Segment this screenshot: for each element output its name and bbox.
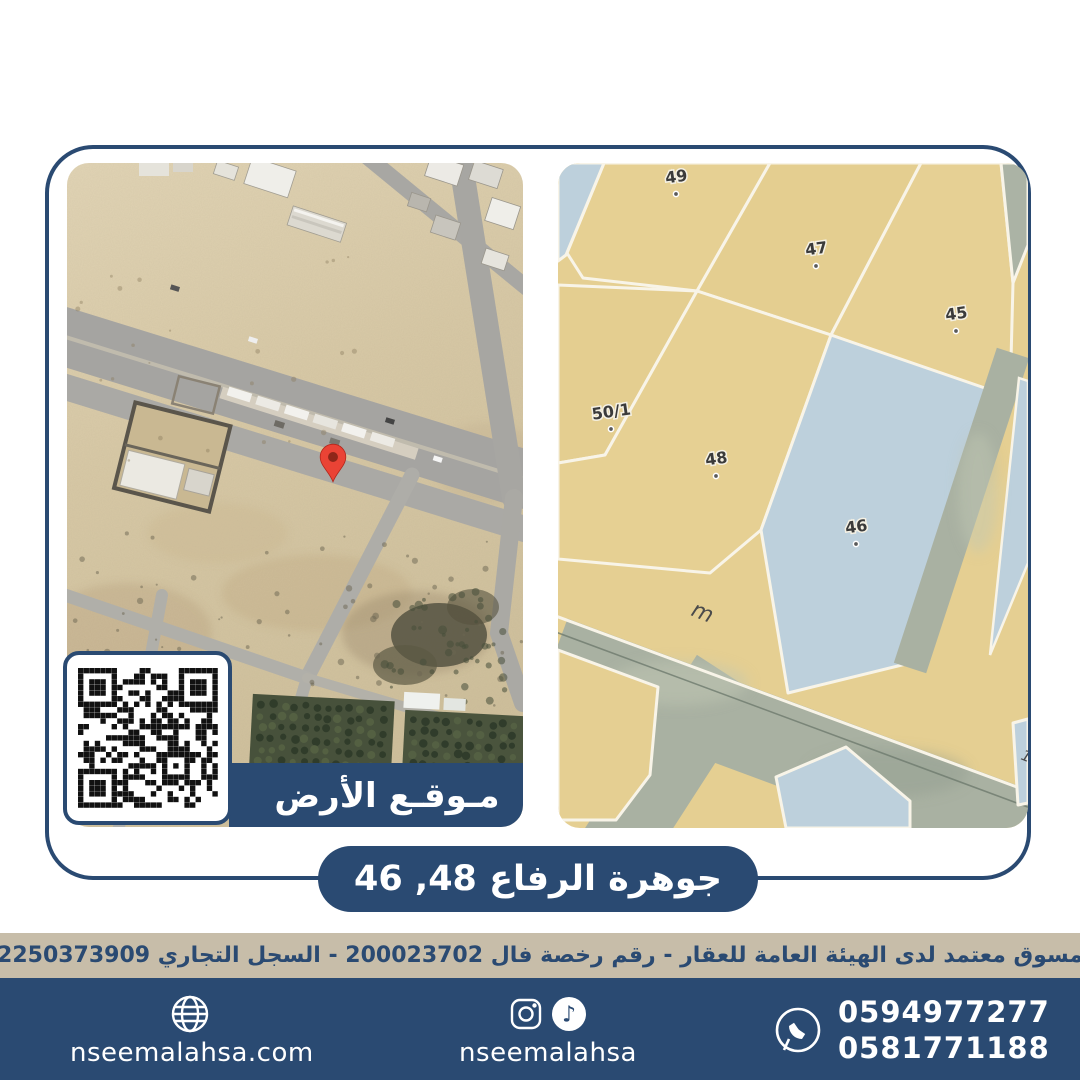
social-handle-text[interactable]: nseemalahsa [428,1038,668,1068]
svg-text:♪: ♪ [562,1003,576,1028]
tiktok-icon[interactable]: ♪ [551,996,587,1032]
globe-icon [170,994,210,1034]
phone-group[interactable]: 0594977277 0581771188 [772,994,1050,1066]
instagram-icon[interactable] [509,997,543,1031]
parcel-label-45: 45 [944,303,969,325]
whatsapp-icon[interactable] [772,1004,824,1056]
parcel-label-46: 46 [844,516,869,538]
social-group[interactable]: ♪ nseemalahsa [428,992,668,1068]
license-bar: مسوق معتمد لدى الهيئة العامة للعقار - رق… [0,933,1080,978]
parcel-label-48: 48 [704,448,729,470]
website-text[interactable]: nseemalahsa.com [70,1038,310,1068]
location-label: مـوقـع الأرض [274,774,499,816]
qr-modules [78,668,218,808]
parcel-label-49: 49 [664,166,689,188]
phone-handset-glyph [789,1023,805,1039]
footer-bar: nseemalahsa.com ♪ nseemalahsa 0594977277… [0,978,1080,1080]
title-banner: جوهرة الرفاع 48, 46 [318,846,758,912]
phone-number-2[interactable]: 0581771188 [838,1030,1050,1066]
phone-number-1[interactable]: 0594977277 [838,994,1050,1030]
qr-art [67,655,228,821]
parcel-label-47: 47 [804,238,829,260]
parcel-map: 49 47 45 50/1 48 46 m 18 [558,163,1028,828]
parcel-map-art: 49 47 45 50/1 48 46 m 18 [558,163,1028,828]
website-group[interactable]: nseemalahsa.com [70,992,310,1068]
license-text: مسوق معتمد لدى الهيئة العامة للعقار - رق… [0,943,1080,968]
title-text: جوهرة الرفاع 48, 46 [354,859,722,899]
flyer-page: { "brand": { "navy": "#2a4a72", "beige":… [0,0,1080,1080]
qr-code[interactable] [63,651,232,825]
